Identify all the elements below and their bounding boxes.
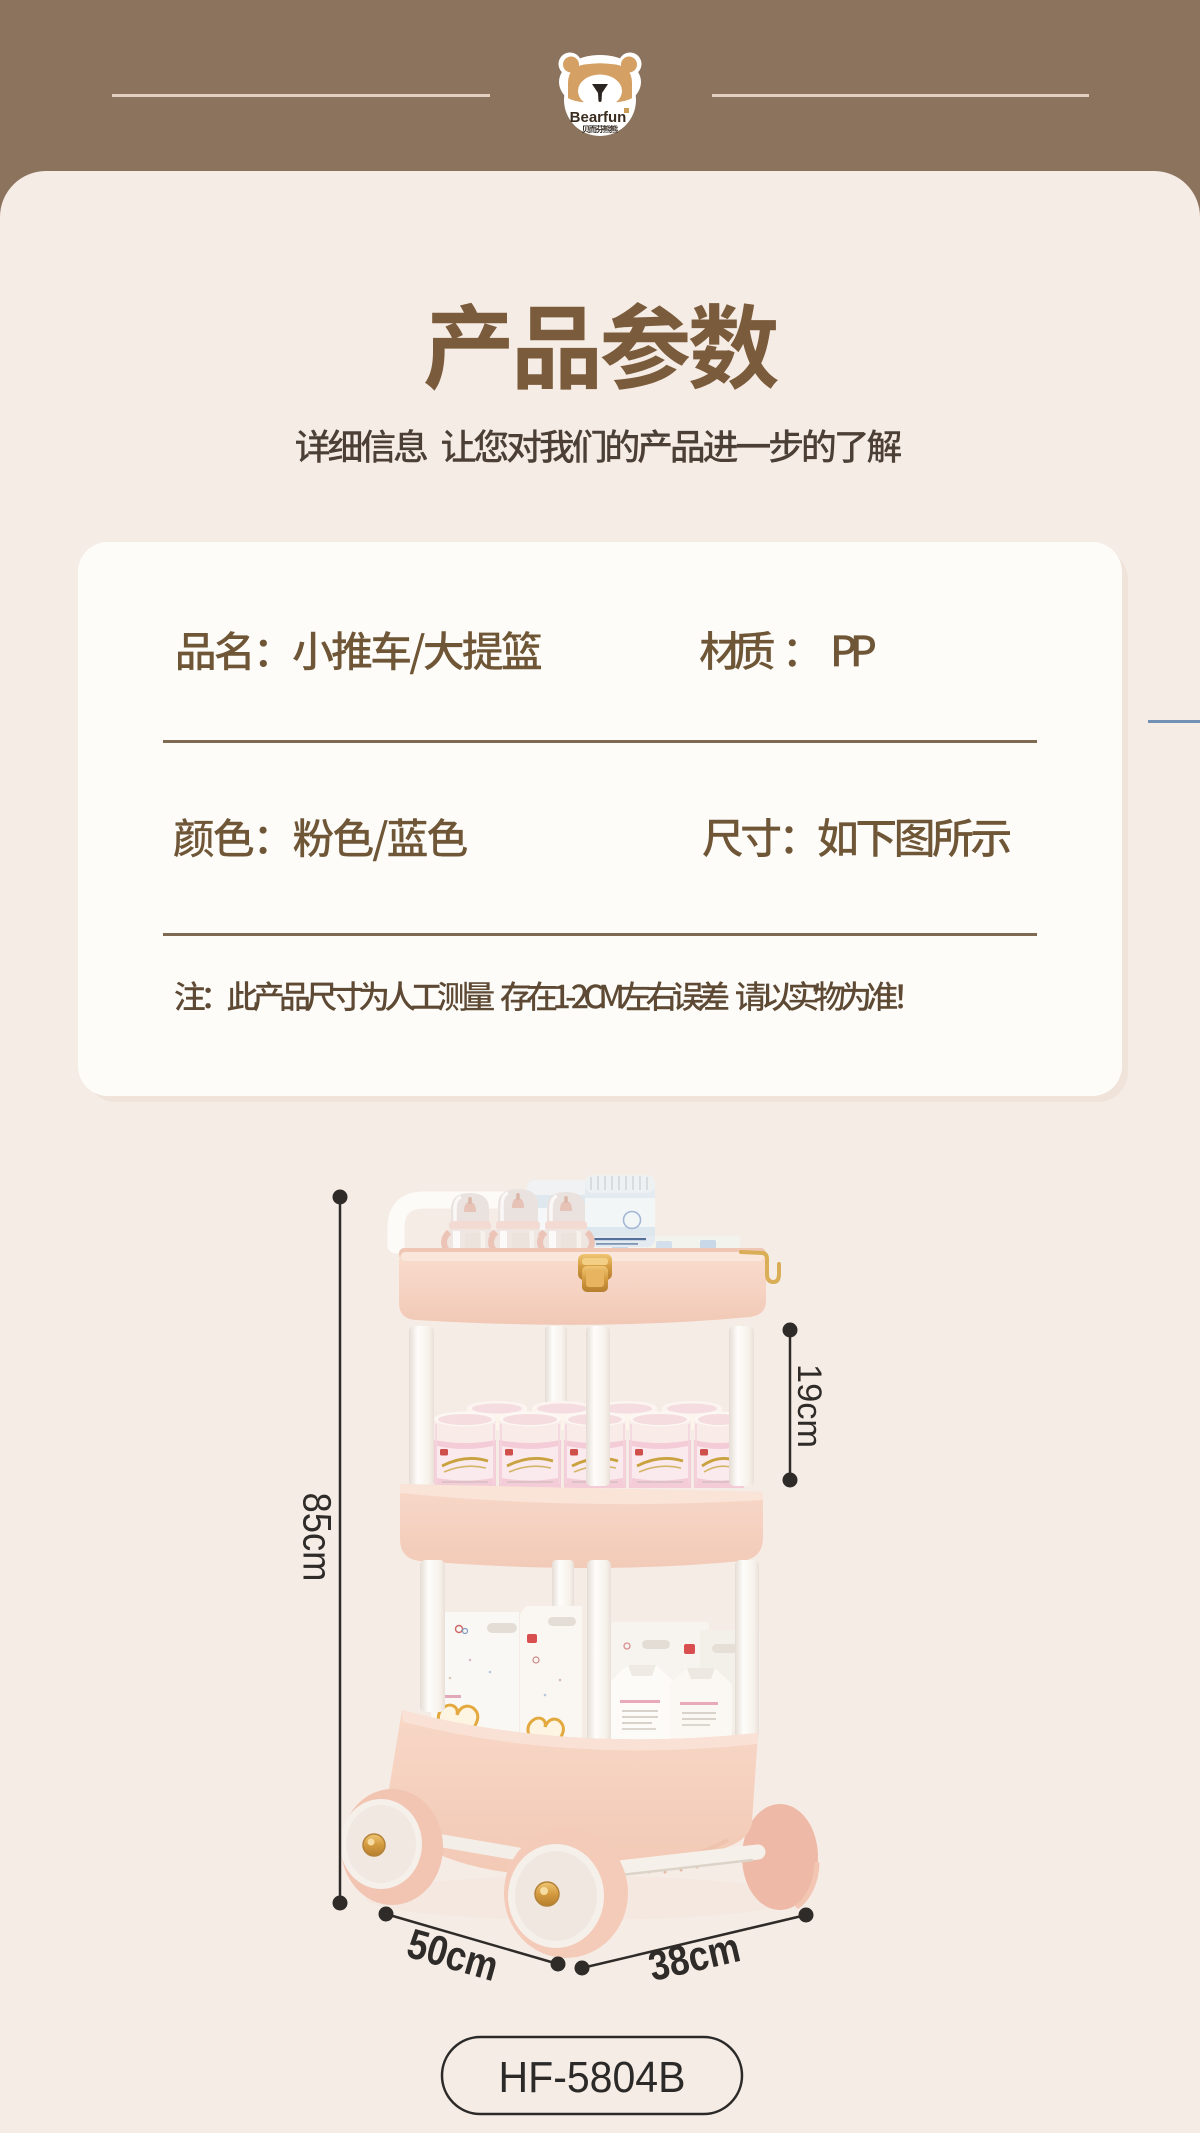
svg-text:50cm: 50cm [402,1919,503,1990]
svg-text:HF-5804B: HF-5804B [499,2053,686,2102]
svg-text:19cm: 19cm [790,1364,828,1448]
svg-text:Bearfun: Bearfun [570,109,627,126]
svg-text:85cm: 85cm [294,1493,338,1582]
svg-text:38cm: 38cm [644,1923,744,1989]
